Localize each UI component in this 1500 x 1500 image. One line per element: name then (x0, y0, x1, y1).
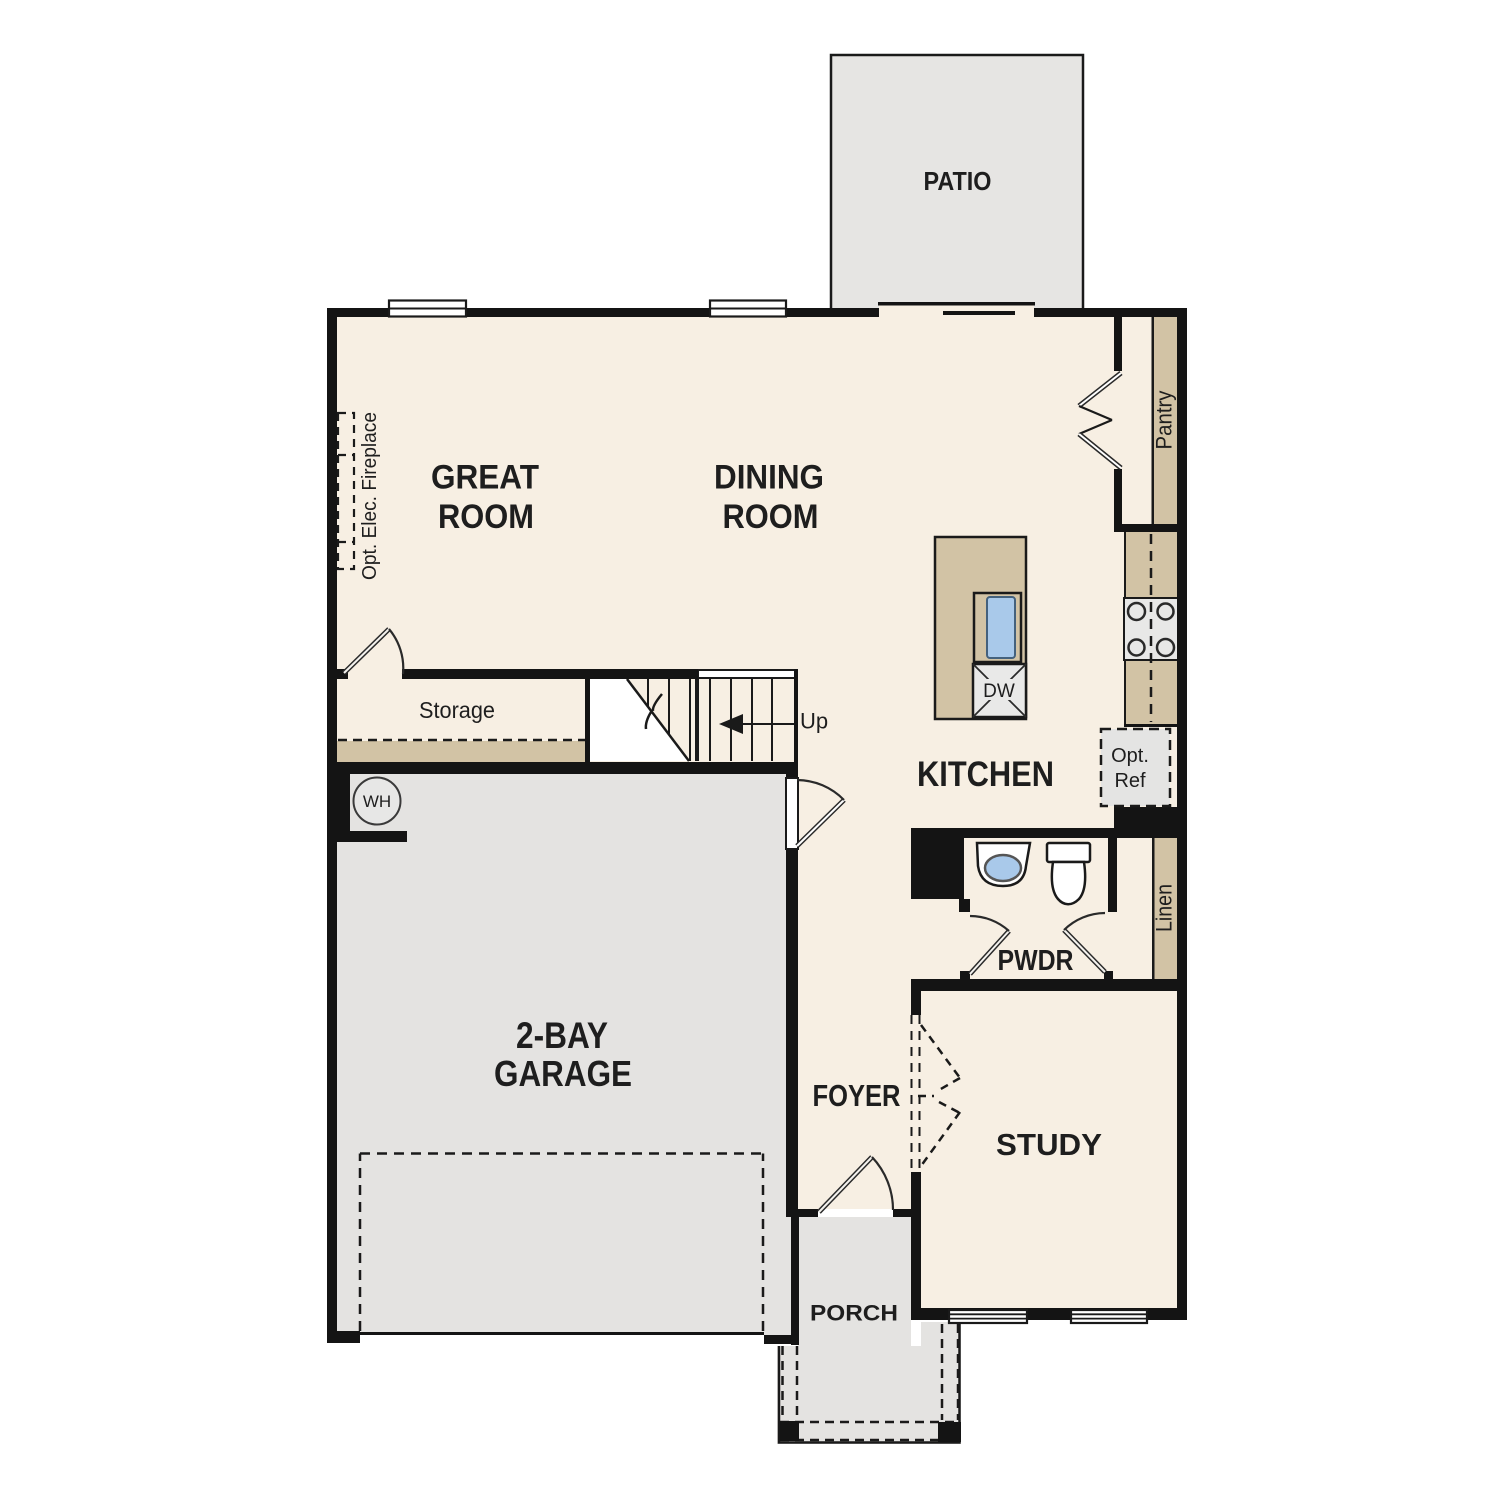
svg-text:FOYER: FOYER (813, 1078, 901, 1113)
svg-text:Pantry: Pantry (1152, 391, 1177, 450)
svg-text:WH: WH (363, 792, 391, 811)
svg-text:PWDR: PWDR (998, 945, 1074, 977)
svg-text:GARAGE: GARAGE (494, 1053, 632, 1094)
svg-text:Storage: Storage (419, 697, 495, 723)
svg-text:Up: Up (800, 709, 828, 734)
svg-text:PATIO: PATIO (924, 168, 992, 196)
svg-text:GREAT: GREAT (431, 459, 539, 497)
svg-text:Opt.: Opt. (1111, 745, 1149, 767)
svg-text:STUDY: STUDY (996, 1127, 1102, 1162)
svg-text:DINING: DINING (714, 459, 824, 497)
svg-text:PORCH: PORCH (810, 1301, 898, 1326)
svg-text:Linen: Linen (1152, 884, 1177, 932)
svg-text:2-BAY: 2-BAY (516, 1015, 608, 1056)
svg-text:Opt. Elec. Fireplace: Opt. Elec. Fireplace (359, 412, 381, 580)
svg-text:ROOM: ROOM (723, 498, 819, 536)
svg-text:Ref: Ref (1114, 770, 1146, 792)
svg-text:DW: DW (983, 681, 1015, 702)
svg-text:ROOM: ROOM (438, 498, 534, 536)
svg-text:KITCHEN: KITCHEN (917, 755, 1054, 794)
